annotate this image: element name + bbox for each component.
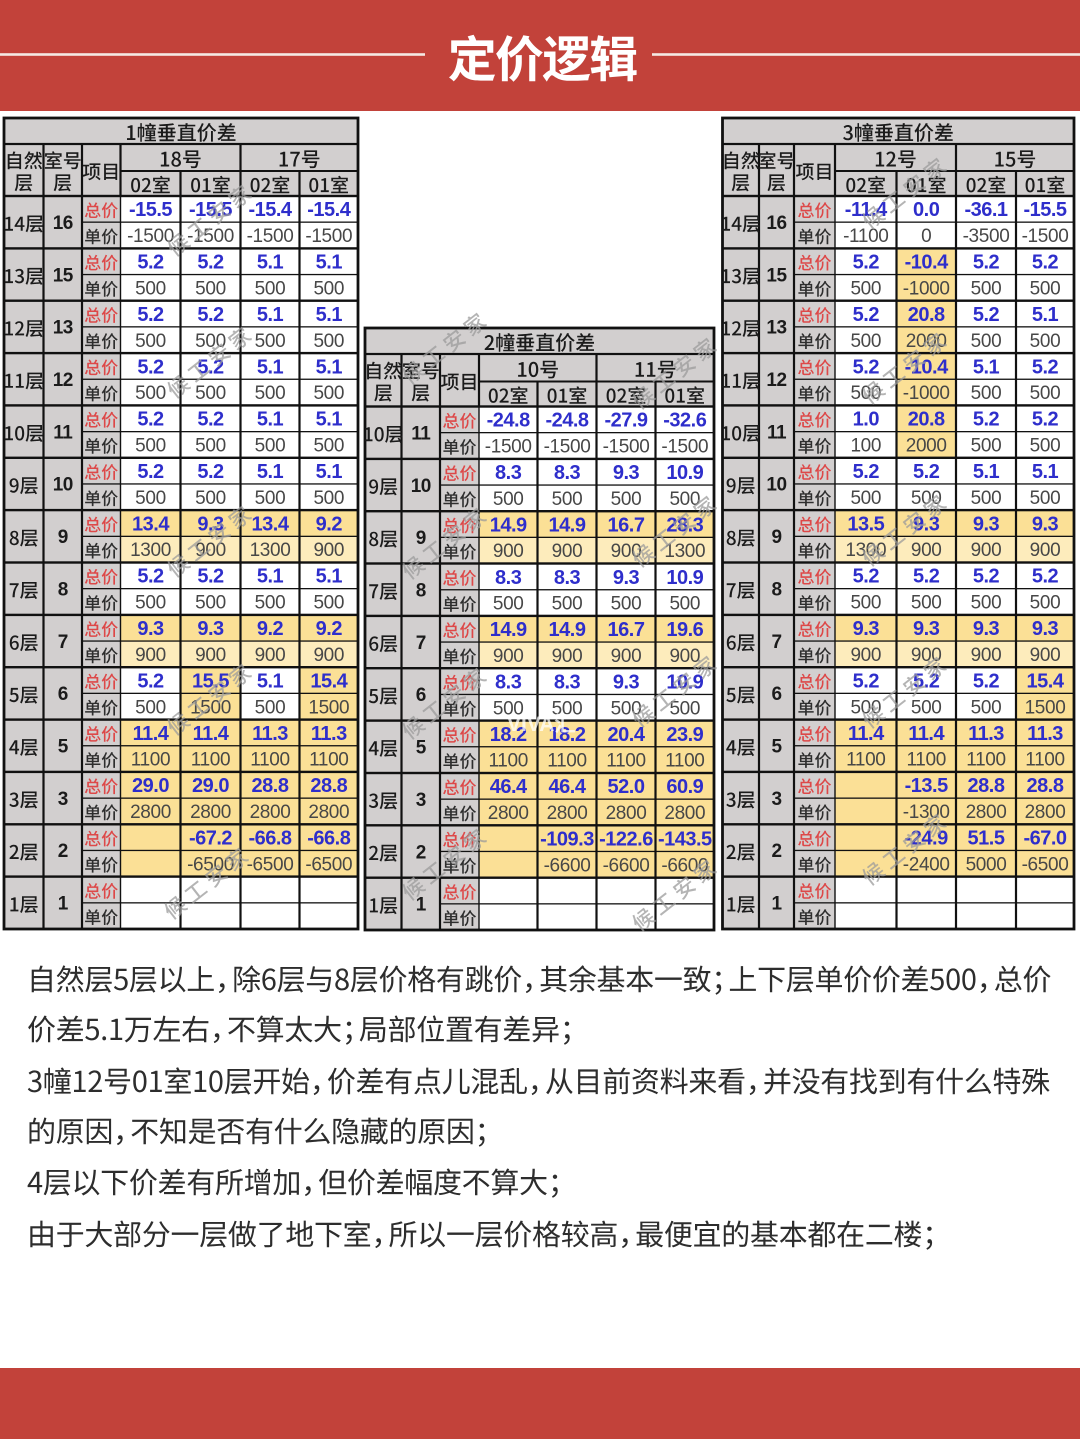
svg-text:8: 8 [58,580,68,601]
svg-text:500: 500 [135,331,166,352]
svg-text:500: 500 [911,697,942,718]
svg-text:1300: 1300 [250,540,291,561]
svg-text:-66.8: -66.8 [248,828,291,850]
svg-text:9.3: 9.3 [913,618,940,640]
svg-text:11: 11 [411,424,431,445]
svg-text:1100: 1100 [131,750,170,771]
svg-text:10: 10 [411,476,431,497]
svg-text:11.4: 11.4 [848,723,885,745]
svg-text:500: 500 [255,331,286,352]
svg-text:-2400: -2400 [903,854,950,875]
svg-text:11.4: 11.4 [133,723,170,745]
svg-text:1500: 1500 [1025,697,1066,718]
svg-text:9.3: 9.3 [973,513,1000,535]
svg-text:500: 500 [313,278,344,299]
svg-text:8.3: 8.3 [495,567,522,589]
svg-text:900: 900 [552,541,583,562]
svg-text:9.3: 9.3 [613,567,640,589]
svg-text:900: 900 [493,646,524,667]
svg-text:500: 500 [611,698,642,719]
svg-text:52.0: 52.0 [608,776,645,798]
svg-text:5.1: 5.1 [257,566,284,588]
svg-text:5.2: 5.2 [1032,566,1059,588]
svg-text:500: 500 [255,278,286,299]
svg-text:11.4: 11.4 [193,723,230,745]
svg-text:5.2: 5.2 [973,304,1000,326]
svg-text:29.0: 29.0 [192,775,229,797]
svg-text:500: 500 [255,436,286,457]
svg-text:9.3: 9.3 [973,618,1000,640]
svg-text:3: 3 [771,789,781,810]
svg-text:11.3: 11.3 [968,723,1004,745]
svg-text:1: 1 [416,895,427,916]
svg-text:2800: 2800 [190,802,231,823]
svg-text:5.2: 5.2 [973,252,1000,274]
svg-text:46.4: 46.4 [549,776,587,798]
svg-text:5.2: 5.2 [197,304,224,326]
svg-text:5: 5 [771,737,782,758]
svg-text:9: 9 [416,528,426,549]
svg-text:1.0: 1.0 [853,409,880,431]
svg-text:0.0: 0.0 [913,199,940,221]
svg-text:5.2: 5.2 [1032,356,1059,378]
svg-text:500: 500 [1030,593,1061,614]
svg-text:9.3: 9.3 [613,672,640,694]
svg-text:900: 900 [313,540,344,561]
svg-text:500: 500 [552,594,583,615]
svg-text:-66.8: -66.8 [307,828,350,850]
svg-text:1300: 1300 [130,540,171,561]
svg-text:16.7: 16.7 [608,619,645,641]
svg-text:5.2: 5.2 [197,461,224,483]
svg-text:14.9: 14.9 [490,619,527,641]
svg-text:500: 500 [1030,436,1061,457]
svg-text:2800: 2800 [606,803,647,824]
svg-text:2800: 2800 [547,803,588,824]
svg-text:500: 500 [1030,383,1061,404]
svg-text:-1500: -1500 [485,437,532,458]
svg-text:5.2: 5.2 [1032,409,1059,431]
svg-text:9.3: 9.3 [1032,513,1059,535]
svg-text:10.9: 10.9 [666,462,703,484]
svg-text:-6600: -6600 [544,855,591,876]
svg-text:2800: 2800 [1025,802,1066,823]
svg-text:1100: 1100 [547,751,586,772]
svg-text:1100: 1100 [906,750,945,771]
svg-text:5.2: 5.2 [853,304,880,326]
svg-text:16.7: 16.7 [608,514,645,536]
svg-text:900: 900 [971,540,1002,561]
svg-text:7: 7 [58,632,68,653]
svg-text:900: 900 [611,646,642,667]
svg-text:-6500: -6500 [1022,854,1069,875]
svg-text:19.6: 19.6 [666,619,703,641]
svg-text:500: 500 [669,594,700,615]
svg-text:-11.4: -11.4 [845,199,888,221]
svg-text:15.4: 15.4 [1027,670,1065,692]
svg-text:1100: 1100 [665,751,704,772]
svg-text:1100: 1100 [488,751,527,772]
svg-text:900: 900 [850,645,881,666]
svg-text:-1500: -1500 [127,226,174,247]
svg-text:2: 2 [771,841,781,862]
svg-text:1100: 1100 [966,750,1005,771]
svg-text:-3500: -3500 [963,226,1010,247]
svg-text:14.9: 14.9 [549,619,586,641]
svg-text:-32.6: -32.6 [663,410,706,432]
svg-text:5.2: 5.2 [137,252,164,274]
svg-text:3: 3 [416,790,426,811]
svg-text:-6500: -6500 [305,854,352,875]
svg-text:500: 500 [1030,488,1061,509]
svg-text:900: 900 [195,645,226,666]
svg-text:0: 0 [921,226,931,247]
svg-text:-27.9: -27.9 [604,410,647,432]
svg-text:-6600: -6600 [603,855,650,876]
svg-text:-15.4: -15.4 [307,199,351,221]
svg-text:10: 10 [766,475,786,496]
svg-text:500: 500 [255,697,286,718]
svg-text:1100: 1100 [606,751,645,772]
svg-text:5.2: 5.2 [973,409,1000,431]
svg-text:500: 500 [971,383,1002,404]
svg-text:500: 500 [971,331,1002,352]
svg-text:-13.5: -13.5 [905,775,948,797]
svg-text:-24.8: -24.8 [545,410,588,432]
svg-text:8: 8 [771,580,781,601]
svg-text:8.3: 8.3 [495,672,522,694]
svg-text:5.2: 5.2 [197,566,224,588]
svg-text:900: 900 [493,541,524,562]
svg-text:13.5: 13.5 [847,513,884,535]
svg-text:500: 500 [552,489,583,510]
svg-text:-109.3: -109.3 [540,829,594,851]
svg-text:2: 2 [58,841,68,862]
svg-text:5.2: 5.2 [853,356,880,378]
svg-text:7: 7 [416,633,426,654]
svg-text:9.3: 9.3 [197,618,224,640]
svg-text:28.8: 28.8 [1027,775,1064,797]
svg-text:2800: 2800 [130,802,171,823]
svg-text:2800: 2800 [308,802,349,823]
svg-text:900: 900 [313,645,344,666]
svg-text:500: 500 [1030,331,1061,352]
svg-text:500: 500 [135,383,166,404]
svg-text:9: 9 [771,527,781,548]
svg-text:500: 500 [911,593,942,614]
svg-text:2800: 2800 [488,803,529,824]
svg-text:5.1: 5.1 [973,356,1000,378]
svg-text:-1000: -1000 [903,278,950,299]
svg-text:1100: 1100 [1025,750,1064,771]
svg-text:7: 7 [771,632,781,653]
svg-text:1100: 1100 [250,750,289,771]
svg-text:500: 500 [971,488,1002,509]
svg-text:5.2: 5.2 [137,356,164,378]
svg-text:-1300: -1300 [903,802,950,823]
svg-text:2000: 2000 [906,436,947,457]
svg-text:5.1: 5.1 [257,356,284,378]
svg-text:-1500: -1500 [247,226,294,247]
svg-text:-1500: -1500 [305,226,352,247]
svg-text:8: 8 [416,581,426,602]
svg-text:9.2: 9.2 [316,618,343,640]
svg-text:15: 15 [53,265,74,286]
svg-text:28.8: 28.8 [968,775,1005,797]
svg-text:-36.1: -36.1 [964,199,1007,221]
svg-text:11: 11 [53,422,73,443]
svg-text:5.1: 5.1 [973,461,1000,483]
svg-text:2800: 2800 [966,802,1007,823]
svg-text:-6500: -6500 [247,854,294,875]
svg-text:28.8: 28.8 [310,775,347,797]
svg-text:-1500: -1500 [544,437,591,458]
svg-text:5.1: 5.1 [1032,461,1059,483]
svg-text:500: 500 [255,488,286,509]
svg-text:5.2: 5.2 [1032,252,1059,274]
svg-text:5.2: 5.2 [137,409,164,431]
svg-text:500: 500 [313,383,344,404]
svg-text:9.2: 9.2 [257,618,284,640]
svg-text:5.1: 5.1 [1032,304,1059,326]
svg-text:5.2: 5.2 [197,252,224,274]
svg-text:500: 500 [255,593,286,614]
svg-text:5.2: 5.2 [137,566,164,588]
svg-text:46.4: 46.4 [490,776,528,798]
svg-text:5.1: 5.1 [316,566,343,588]
svg-text:5.1: 5.1 [316,356,343,378]
svg-text:5000: 5000 [966,854,1007,875]
svg-text:5.2: 5.2 [137,670,164,692]
svg-text:500: 500 [850,488,881,509]
svg-text:500: 500 [313,436,344,457]
svg-text:12: 12 [53,370,73,391]
svg-text:16: 16 [766,213,786,234]
svg-text:23.9: 23.9 [666,724,703,746]
svg-text:500: 500 [971,593,1002,614]
svg-text:28.8: 28.8 [252,775,289,797]
svg-text:11.3: 11.3 [1027,723,1063,745]
svg-text:5: 5 [416,738,427,759]
svg-text:500: 500 [850,331,881,352]
svg-text:VIVA汇: VIVA汇 [507,713,575,736]
svg-text:500: 500 [195,488,226,509]
svg-text:9.3: 9.3 [853,618,880,640]
svg-text:6: 6 [771,684,781,705]
svg-text:500: 500 [195,436,226,457]
svg-text:-1500: -1500 [1022,226,1069,247]
svg-text:1: 1 [58,894,69,915]
svg-text:13.4: 13.4 [252,513,290,535]
svg-text:500: 500 [135,697,166,718]
svg-text:-10.4: -10.4 [905,252,949,274]
svg-text:5.2: 5.2 [913,566,940,588]
svg-text:500: 500 [493,594,524,615]
svg-text:5.2: 5.2 [913,461,940,483]
svg-text:-24.8: -24.8 [487,410,530,432]
svg-text:900: 900 [135,645,166,666]
svg-text:500: 500 [135,593,166,614]
svg-text:5.2: 5.2 [853,252,880,274]
svg-text:500: 500 [313,593,344,614]
svg-text:5: 5 [58,737,69,758]
svg-text:14.9: 14.9 [490,514,527,536]
svg-text:9.3: 9.3 [613,462,640,484]
svg-text:5.1: 5.1 [316,252,343,274]
svg-text:20.8: 20.8 [908,304,945,326]
svg-text:5.2: 5.2 [853,461,880,483]
svg-text:9.3: 9.3 [137,618,164,640]
svg-text:-143.5: -143.5 [658,829,712,851]
svg-text:51.5: 51.5 [968,828,1005,850]
svg-text:12: 12 [766,370,786,391]
svg-text:6: 6 [58,684,68,705]
svg-text:60.9: 60.9 [666,776,703,798]
svg-text:1100: 1100 [309,750,348,771]
svg-text:-15.5: -15.5 [1023,199,1066,221]
svg-text:13: 13 [53,318,73,339]
svg-text:5.2: 5.2 [973,566,1000,588]
svg-text:500: 500 [135,488,166,509]
svg-text:500: 500 [493,489,524,510]
svg-text:900: 900 [911,540,942,561]
svg-text:500: 500 [1030,278,1061,299]
svg-text:500: 500 [971,697,1002,718]
svg-text:500: 500 [195,331,226,352]
svg-text:5.1: 5.1 [257,252,284,274]
svg-text:500: 500 [195,278,226,299]
svg-text:5.2: 5.2 [137,304,164,326]
svg-text:-15.4: -15.4 [248,199,292,221]
svg-text:11.4: 11.4 [908,723,945,745]
svg-text:500: 500 [195,593,226,614]
svg-text:500: 500 [611,594,642,615]
svg-text:-67.2: -67.2 [189,828,232,850]
svg-text:500: 500 [611,489,642,510]
svg-text:5.1: 5.1 [257,461,284,483]
svg-text:500: 500 [850,278,881,299]
svg-text:11.3: 11.3 [311,723,347,745]
svg-text:14.9: 14.9 [549,514,586,536]
svg-text:-67.0: -67.0 [1023,828,1066,850]
svg-text:10.9: 10.9 [666,567,703,589]
svg-text:-1500: -1500 [661,437,708,458]
svg-text:900: 900 [669,646,700,667]
svg-text:11.3: 11.3 [252,723,288,745]
svg-text:5.2: 5.2 [853,670,880,692]
svg-text:2800: 2800 [664,803,705,824]
svg-text:900: 900 [971,645,1002,666]
svg-text:5.2: 5.2 [197,409,224,431]
svg-text:-1100: -1100 [843,226,888,247]
svg-text:9.3: 9.3 [1032,618,1059,640]
svg-text:900: 900 [1030,540,1061,561]
svg-text:500: 500 [255,383,286,404]
svg-text:5.2: 5.2 [853,566,880,588]
svg-text:6: 6 [416,685,426,706]
svg-text:20.4: 20.4 [608,724,646,746]
svg-text:15: 15 [766,265,787,286]
svg-text:2: 2 [416,842,426,863]
svg-text:5.1: 5.1 [316,409,343,431]
svg-text:500: 500 [135,278,166,299]
svg-text:1: 1 [771,894,782,915]
svg-text:500: 500 [971,436,1002,457]
svg-text:13: 13 [766,318,786,339]
svg-text:5.1: 5.1 [316,461,343,483]
svg-text:5.2: 5.2 [137,461,164,483]
svg-text:100: 100 [850,436,881,457]
svg-text:900: 900 [552,646,583,667]
svg-text:13.4: 13.4 [132,513,170,535]
svg-text:900: 900 [255,645,286,666]
svg-text:29.0: 29.0 [132,775,169,797]
svg-text:500: 500 [971,278,1002,299]
svg-text:9: 9 [58,527,68,548]
svg-text:-122.6: -122.6 [599,829,653,851]
svg-text:20.8: 20.8 [908,409,945,431]
svg-text:8.3: 8.3 [495,462,522,484]
svg-text:5.1: 5.1 [316,304,343,326]
svg-text:16: 16 [53,213,73,234]
svg-text:500: 500 [669,489,700,510]
svg-text:5.2: 5.2 [973,670,1000,692]
svg-text:500: 500 [135,436,166,457]
svg-text:1500: 1500 [308,697,349,718]
svg-text:8.3: 8.3 [554,567,581,589]
svg-text:3: 3 [58,789,68,810]
svg-text:15.4: 15.4 [310,670,348,692]
svg-text:10: 10 [53,475,73,496]
svg-text:5.1: 5.1 [257,670,284,692]
svg-text:8.3: 8.3 [554,462,581,484]
svg-text:500: 500 [313,488,344,509]
svg-text:2800: 2800 [250,802,291,823]
svg-text:8.3: 8.3 [554,672,581,694]
svg-text:9.2: 9.2 [316,513,343,535]
svg-text:5.1: 5.1 [257,304,284,326]
svg-text:1100: 1100 [846,750,885,771]
svg-text:500: 500 [195,383,226,404]
svg-text:500: 500 [313,331,344,352]
svg-text:-1500: -1500 [603,437,650,458]
svg-text:500: 500 [850,593,881,614]
svg-text:1100: 1100 [191,750,230,771]
svg-text:5.1: 5.1 [257,409,284,431]
svg-text:11: 11 [767,422,787,443]
svg-text:900: 900 [1030,645,1061,666]
svg-text:-15.5: -15.5 [129,199,172,221]
svg-text:-1000: -1000 [903,383,950,404]
